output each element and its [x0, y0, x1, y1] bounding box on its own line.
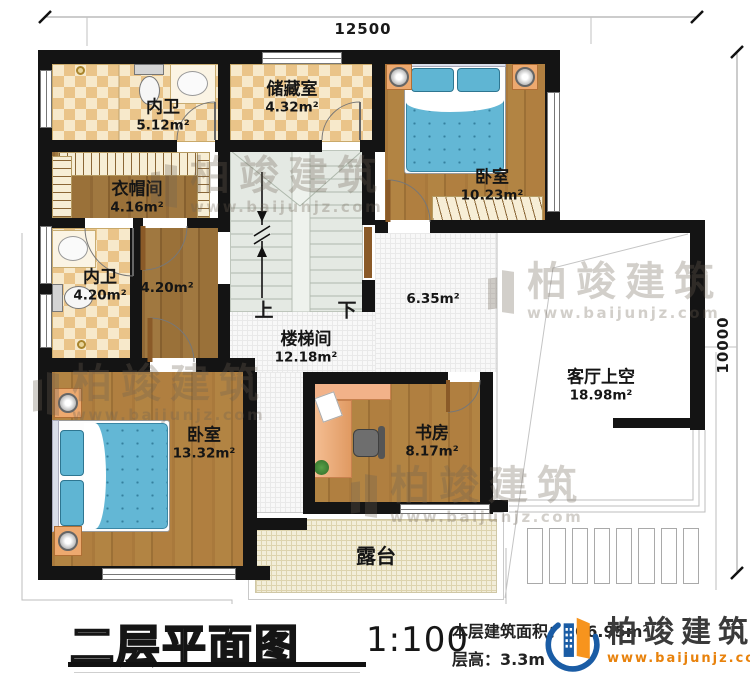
room-name: 客厅上空: [567, 368, 635, 388]
room-name: 楼梯间: [275, 330, 338, 350]
window: [262, 52, 342, 64]
wall: [480, 372, 493, 514]
title-underline: [68, 662, 366, 667]
toilet-tank: [52, 284, 63, 312]
stairs: [230, 150, 363, 316]
wall: [218, 152, 230, 232]
pergola-slat: [594, 528, 610, 584]
wall: [215, 140, 322, 152]
brand-url: www.baijunjz.com: [607, 651, 750, 666]
room-name: 内卫: [136, 98, 189, 118]
nightstand-lamp: [54, 388, 82, 418]
sink-basin: [58, 236, 88, 261]
nightstand-lamp: [512, 64, 538, 90]
room-name: 露台: [356, 544, 396, 568]
room-area: 4.32m²: [265, 100, 318, 116]
wall: [196, 358, 255, 372]
room-label-storage: 储藏室 4.32m²: [265, 80, 318, 117]
brand-name: 柏竣建筑: [607, 618, 750, 648]
stair-down-label: 下: [337, 296, 356, 323]
dimension-line-right: [705, 46, 743, 579]
room-label-corridor: 4.20m²: [140, 280, 193, 296]
room-name: 卧室: [461, 168, 524, 188]
pergola-slat: [527, 528, 543, 584]
floor-drain: [77, 340, 86, 349]
room-area: 5.12m²: [136, 118, 189, 134]
wall: [38, 140, 177, 152]
nightstand-lamp: [386, 64, 412, 90]
room-area: 8.17m²: [405, 444, 458, 460]
floor-height-label: 层高：: [452, 650, 500, 669]
plant: [314, 460, 329, 475]
room-area: 10.23m²: [461, 188, 524, 204]
title-underline-light: [74, 672, 360, 673]
title-block: 二层平面图 1:100 本层建筑面积：106.95m² 层高：3.3m 柏竣建筑…: [0, 604, 750, 687]
room-name: 内卫: [73, 268, 126, 288]
bed-sheet: [84, 423, 106, 529]
room-label-cloak: 衣帽间 4.16m²: [110, 180, 163, 217]
window: [547, 92, 560, 212]
stair-up-label: 上: [254, 296, 273, 323]
chair-back: [378, 426, 385, 459]
passage-floor: [255, 372, 303, 518]
pergola-slat: [661, 528, 677, 584]
room-name: 衣帽间: [110, 180, 163, 200]
wall: [133, 218, 143, 228]
pergola-slats: [527, 528, 699, 584]
wall: [303, 372, 315, 514]
room-label-terrace: 露台: [356, 544, 396, 568]
pillow: [411, 68, 454, 92]
floor-drain: [76, 66, 85, 75]
pergola-slat: [549, 528, 565, 584]
sink-basin: [177, 71, 208, 96]
pillow: [60, 430, 84, 476]
nightstand-lamp: [54, 526, 82, 556]
room-area: 13.32m²: [173, 446, 236, 462]
pergola-slat: [572, 528, 588, 584]
wall: [243, 372, 257, 566]
room-label-stair: 楼梯间 12.18m²: [275, 330, 338, 367]
wall: [218, 50, 230, 140]
closet: [58, 152, 210, 176]
window: [102, 568, 236, 580]
room-name: 卧室: [173, 426, 236, 446]
room-label-study: 书房 8.17m²: [405, 424, 458, 461]
dimension-top-label: 12500: [334, 20, 391, 38]
room-label-livingvoid: 客厅上空 18.98m²: [567, 368, 635, 405]
brand-logo-icon: [545, 612, 601, 672]
wall: [372, 50, 385, 140]
wall: [362, 152, 375, 225]
room-area: 12.18m²: [275, 350, 338, 366]
window: [40, 294, 52, 348]
wall: [430, 220, 705, 233]
room-name: 书房: [405, 424, 458, 444]
room-area: 18.98m²: [567, 388, 635, 404]
window: [40, 226, 52, 284]
window: [40, 70, 52, 128]
closet: [52, 156, 72, 218]
wall: [490, 500, 508, 512]
watermark: 柏竣建筑 www.baijunjz.com: [485, 262, 723, 322]
pergola-slat: [616, 528, 632, 584]
wall: [360, 140, 385, 152]
room-area: 4.16m²: [110, 200, 163, 216]
room-label-bath1: 内卫 5.12m²: [136, 98, 189, 135]
window: [400, 504, 490, 514]
wall: [362, 280, 375, 312]
pergola-slat: [683, 528, 699, 584]
closet: [197, 152, 210, 218]
floorplan-canvas: 内卫 5.12m² 储藏室 4.32m² 卧室 10.23m² 衣帽间 4.16…: [0, 0, 750, 687]
pillow: [457, 68, 500, 92]
wall: [613, 418, 690, 428]
pillow: [60, 480, 84, 526]
room-area: 4.20m²: [73, 288, 126, 304]
floor-height-value: 3.3m: [500, 650, 545, 669]
room-label-bedroom2: 卧室 13.32m²: [173, 426, 236, 463]
toilet-tank: [134, 64, 164, 75]
dimension-right-label: 10000: [714, 316, 732, 373]
room-label-bedroom1: 卧室 10.23m²: [461, 168, 524, 205]
room-label-hall: 6.35m²: [406, 291, 459, 307]
chair: [353, 429, 379, 457]
brand-logo: 柏竣建筑 www.baijunjz.com: [545, 612, 750, 672]
pergola-slat: [638, 528, 654, 584]
wall: [218, 284, 230, 358]
wall: [690, 220, 705, 430]
wall: [375, 220, 388, 233]
room-name: 储藏室: [265, 80, 318, 100]
room-area: 4.20m²: [140, 280, 193, 296]
wall: [38, 358, 52, 580]
bed-headboard: [52, 420, 59, 532]
room-label-bath2: 内卫 4.20m²: [73, 268, 126, 305]
wall: [38, 358, 150, 372]
room-area: 6.35m²: [406, 291, 459, 307]
stairs-drawing: [230, 150, 363, 312]
wall: [257, 518, 307, 530]
wall: [303, 372, 448, 384]
